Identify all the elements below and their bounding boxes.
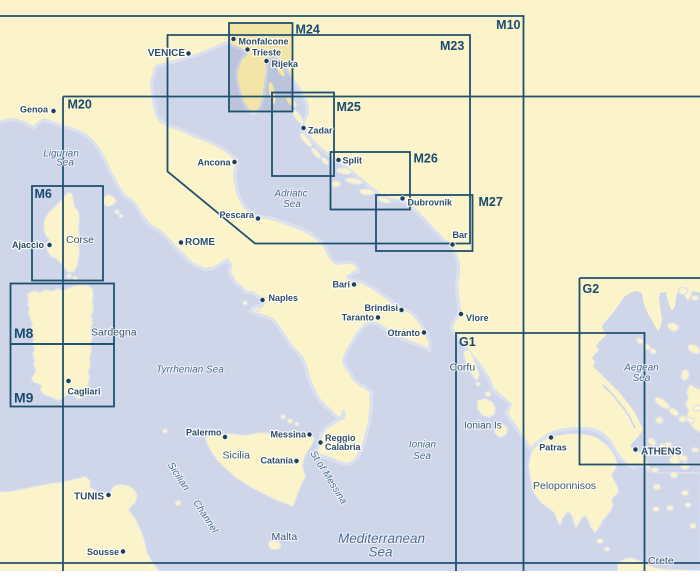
svg-text:Genoa: Genoa [20, 105, 49, 115]
svg-text:Vlore: Vlore [466, 313, 489, 323]
svg-text:Naples: Naples [269, 293, 299, 303]
svg-text:Cagliari: Cagliari [68, 387, 101, 397]
svg-text:Pescara: Pescara [219, 210, 255, 220]
svg-text:Calabria: Calabria [325, 442, 362, 452]
svg-text:Ionian: Ionian [409, 440, 437, 451]
svg-text:Bari: Bari [332, 280, 350, 290]
svg-text:Tyrrhenian Sea: Tyrrhenian Sea [156, 365, 224, 376]
svg-text:M24: M24 [296, 23, 320, 37]
svg-text:M25: M25 [337, 100, 361, 114]
svg-text:Zadar: Zadar [308, 126, 333, 136]
svg-text:Taranto: Taranto [342, 313, 375, 323]
svg-text:Sea: Sea [56, 158, 74, 169]
svg-text:Malta: Malta [272, 531, 298, 543]
svg-text:Sousse: Sousse [87, 547, 119, 557]
svg-text:Palermo: Palermo [186, 428, 222, 438]
svg-text:Otranto: Otranto [388, 328, 421, 338]
svg-text:M8: M8 [14, 325, 34, 341]
svg-text:G1: G1 [459, 335, 476, 349]
svg-text:Monfalcone: Monfalcone [239, 37, 289, 47]
svg-text:Rijeka: Rijeka [272, 59, 300, 69]
svg-text:M26: M26 [414, 152, 438, 166]
svg-text:TUNIS: TUNIS [74, 492, 104, 503]
svg-text:Crete: Crete [648, 555, 674, 567]
svg-text:Peloponnisos: Peloponnisos [533, 480, 596, 492]
svg-text:Bar: Bar [453, 230, 469, 240]
svg-text:G2: G2 [583, 282, 600, 296]
svg-text:Aegean: Aegean [623, 363, 659, 374]
svg-text:M9: M9 [14, 390, 34, 406]
svg-text:Ajaccio: Ajaccio [12, 240, 45, 250]
svg-text:M23: M23 [440, 39, 464, 53]
svg-text:Messina: Messina [270, 430, 307, 440]
svg-text:Sea: Sea [413, 451, 431, 462]
svg-text:Brindisi: Brindisi [364, 303, 398, 313]
svg-text:ROME: ROME [185, 237, 215, 248]
svg-text:Sea: Sea [633, 373, 651, 384]
svg-text:Adriatic: Adriatic [273, 189, 307, 200]
svg-text:VENICE: VENICE [148, 48, 186, 59]
svg-text:M20: M20 [68, 98, 92, 112]
svg-text:Trieste: Trieste [252, 48, 281, 58]
svg-text:ATHENS: ATHENS [641, 447, 682, 458]
svg-text:Catania: Catania [260, 456, 294, 466]
svg-text:M27: M27 [479, 195, 503, 209]
svg-text:Corse: Corse [66, 234, 94, 246]
svg-text:Sardegna: Sardegna [91, 327, 137, 339]
svg-text:Patras: Patras [539, 443, 567, 453]
svg-text:M6: M6 [35, 187, 52, 201]
svg-text:Split: Split [343, 156, 363, 166]
svg-text:Dubrovnik: Dubrovnik [408, 198, 453, 208]
svg-text:Sicilia: Sicilia [223, 450, 251, 462]
svg-text:M10: M10 [496, 18, 520, 32]
svg-text:Ancona: Ancona [197, 158, 231, 168]
svg-text:Sea: Sea [283, 199, 301, 210]
svg-text:Sea: Sea [368, 545, 393, 560]
svg-text:Corfu: Corfu [450, 362, 476, 374]
svg-text:Ionian Is: Ionian Is [464, 421, 502, 432]
